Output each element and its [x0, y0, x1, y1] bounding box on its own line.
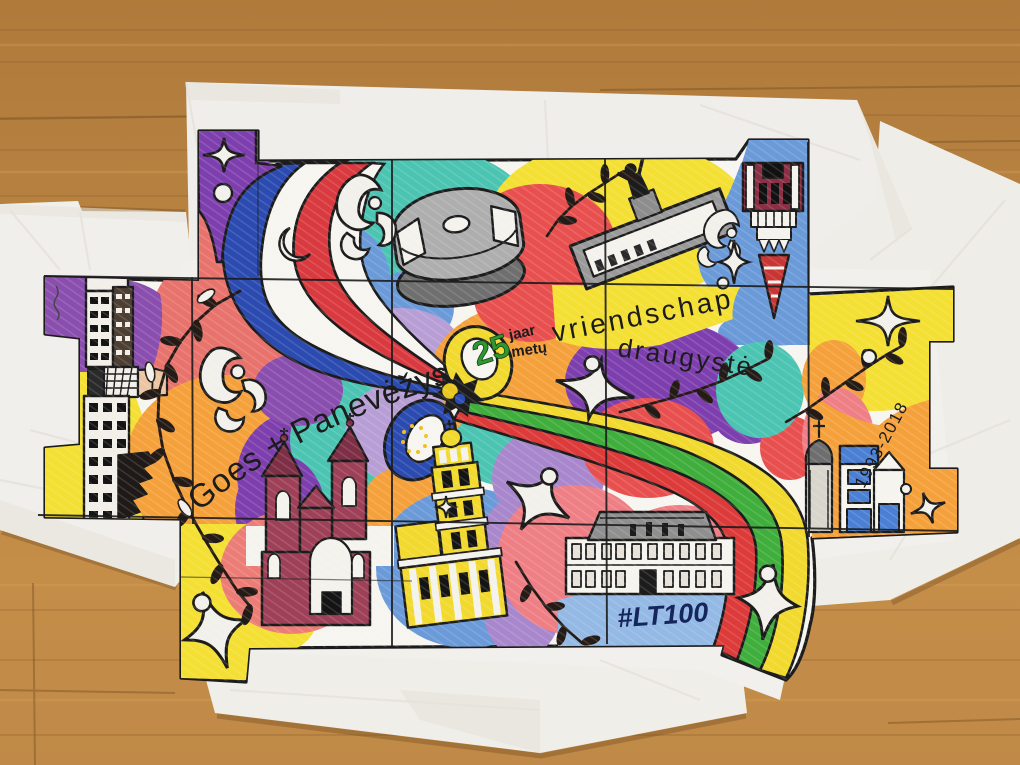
svg-text:#LT100: #LT100 — [616, 597, 709, 633]
